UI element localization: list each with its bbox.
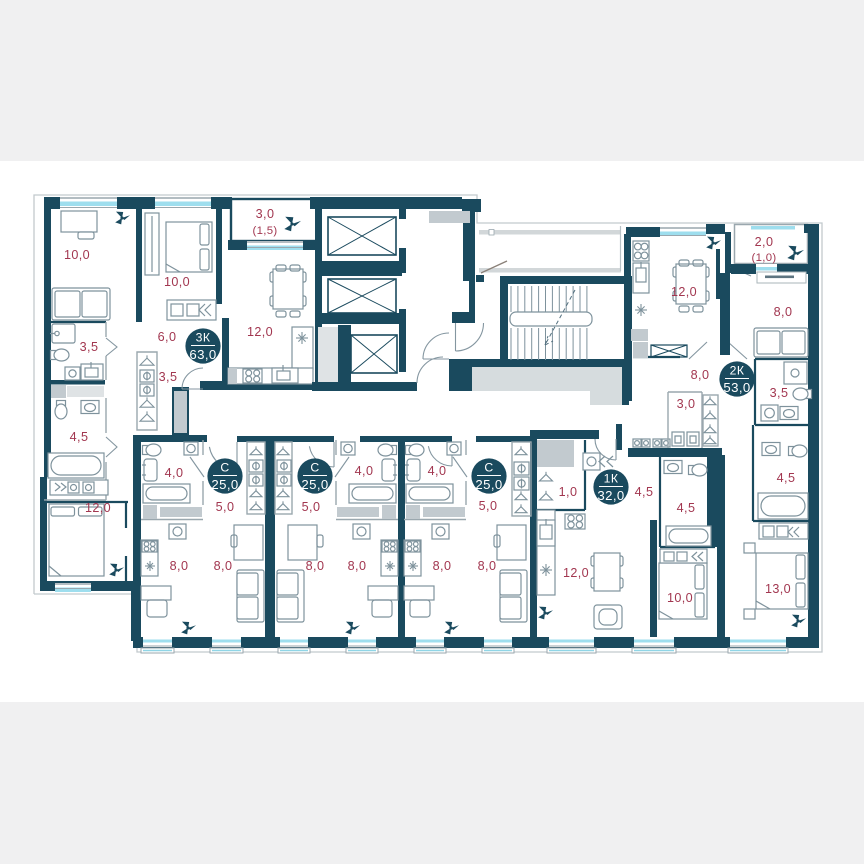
svg-text:53,0: 53,0 [723, 380, 750, 395]
svg-text:12,0: 12,0 [247, 325, 273, 339]
svg-text:4,5: 4,5 [677, 501, 696, 515]
svg-text:32,0: 32,0 [597, 488, 624, 503]
svg-text:(1,0): (1,0) [752, 252, 777, 264]
svg-text:3К: 3К [196, 331, 211, 345]
svg-text:5,0: 5,0 [302, 500, 321, 514]
svg-text:С: С [220, 461, 229, 475]
svg-text:4,0: 4,0 [355, 464, 374, 478]
svg-text:3,0: 3,0 [256, 207, 275, 221]
svg-text:4,0: 4,0 [165, 466, 184, 480]
svg-text:8,0: 8,0 [691, 368, 710, 382]
svg-text:25,0: 25,0 [301, 477, 328, 492]
svg-text:12,0: 12,0 [563, 566, 589, 580]
svg-text:8,0: 8,0 [774, 305, 793, 319]
svg-text:25,0: 25,0 [475, 477, 502, 492]
svg-text:12,0: 12,0 [85, 501, 111, 515]
svg-text:2К: 2К [730, 364, 745, 378]
svg-text:8,0: 8,0 [170, 559, 189, 573]
svg-text:4,5: 4,5 [635, 485, 654, 499]
svg-text:8,0: 8,0 [214, 559, 233, 573]
svg-text:4,5: 4,5 [777, 471, 796, 485]
svg-text:8,0: 8,0 [348, 559, 367, 573]
svg-text:10,0: 10,0 [64, 248, 90, 262]
svg-text:С: С [310, 461, 319, 475]
svg-text:3,5: 3,5 [80, 340, 99, 354]
svg-text:63,0: 63,0 [189, 347, 216, 362]
svg-text:4,5: 4,5 [70, 430, 89, 444]
svg-text:5,0: 5,0 [216, 500, 235, 514]
svg-text:10,0: 10,0 [164, 275, 190, 289]
svg-text:3,0: 3,0 [677, 397, 696, 411]
svg-text:8,0: 8,0 [478, 559, 497, 573]
svg-text:1К: 1К [604, 472, 619, 486]
svg-text:С: С [484, 461, 493, 475]
svg-text:25,0: 25,0 [211, 477, 238, 492]
svg-text:(1,5): (1,5) [253, 225, 278, 237]
svg-text:4,0: 4,0 [428, 464, 447, 478]
svg-text:6,0: 6,0 [158, 330, 177, 344]
svg-text:3,5: 3,5 [770, 386, 789, 400]
svg-text:8,0: 8,0 [433, 559, 452, 573]
svg-text:12,0: 12,0 [671, 285, 697, 299]
svg-text:5,0: 5,0 [479, 499, 498, 513]
svg-text:8,0: 8,0 [306, 559, 325, 573]
svg-text:2,0: 2,0 [755, 235, 774, 249]
svg-text:10,0: 10,0 [667, 591, 693, 605]
svg-text:1,0: 1,0 [559, 485, 578, 499]
svg-text:3,5: 3,5 [159, 370, 178, 384]
svg-text:13,0: 13,0 [765, 582, 791, 596]
